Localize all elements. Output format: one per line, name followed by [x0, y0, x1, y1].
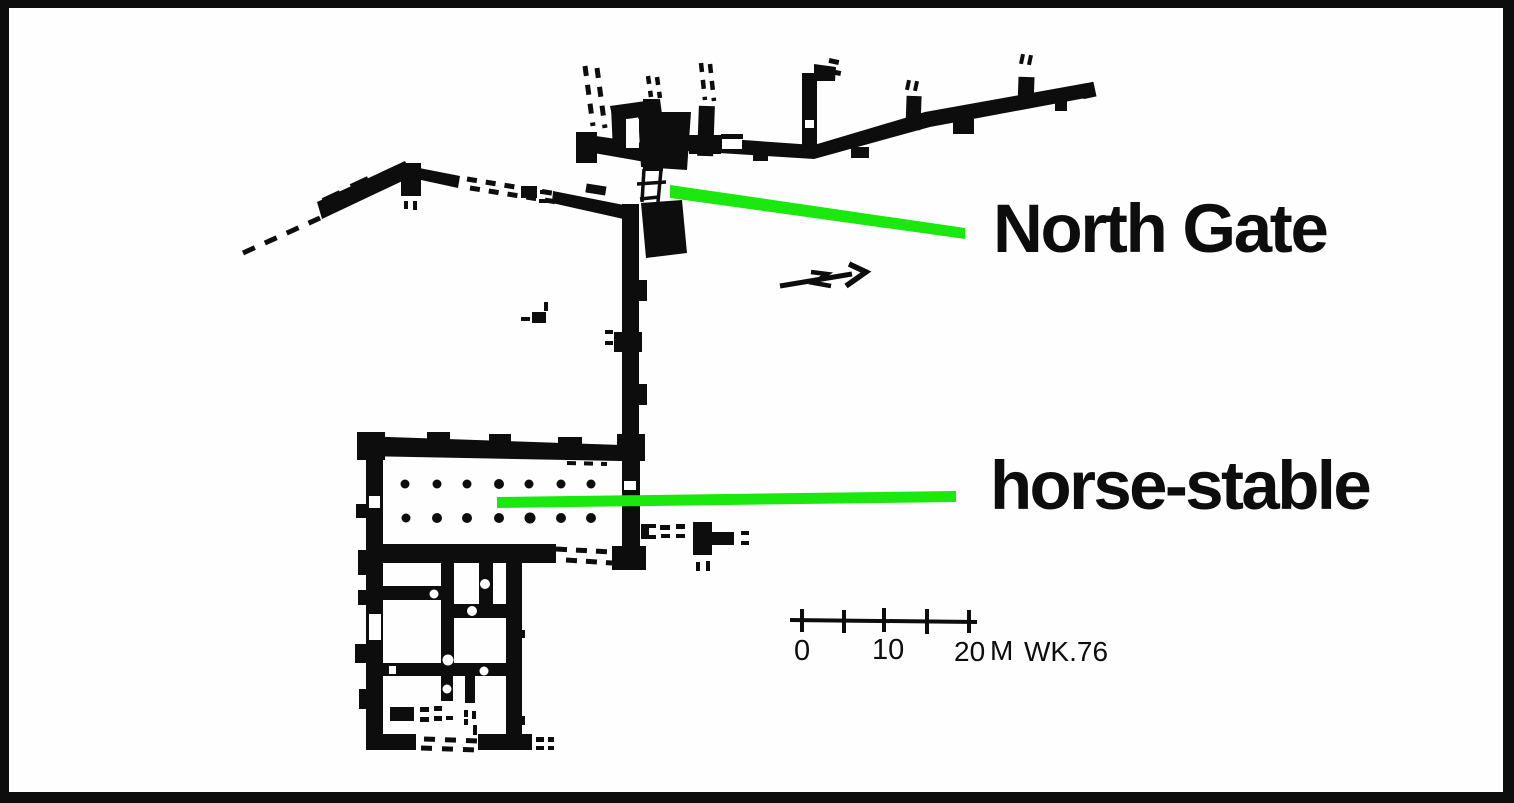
svg-text:WK.76: WK.76: [1024, 636, 1108, 667]
svg-text:horse-stable: horse-stable: [990, 447, 1370, 524]
svg-text:North Gate: North Gate: [993, 190, 1327, 267]
svg-text:M: M: [990, 635, 1013, 666]
svg-text:20: 20: [954, 636, 985, 667]
svg-text:10: 10: [872, 634, 904, 666]
svg-text:0: 0: [794, 635, 810, 667]
